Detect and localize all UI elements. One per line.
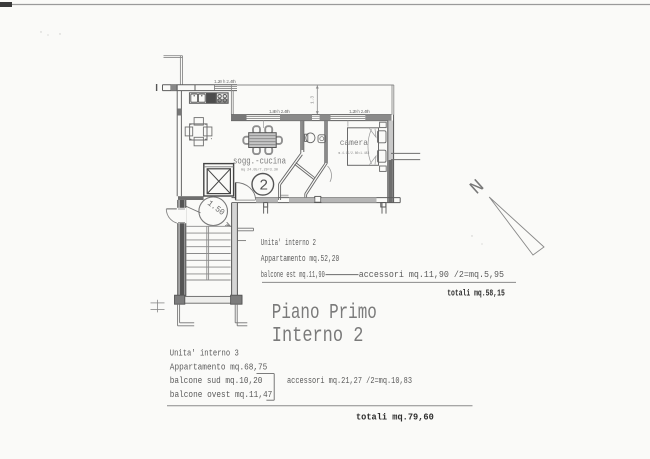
svg-text:accessori mq.21,27 /2=mq.10,83: accessori mq.21,27 /2=mq.10,83 bbox=[287, 376, 412, 386]
svg-text:2: 2 bbox=[259, 178, 268, 195]
svg-text:mq 24.05/7.29=3.30: mq 24.05/7.29=3.30 bbox=[241, 168, 279, 173]
svg-text:Unita' interno 2: Unita' interno 2 bbox=[261, 238, 316, 248]
svg-text:m.4.15/2.80=1.483: m.4.15/2.80=1.483 bbox=[338, 151, 369, 156]
svg-text:balcone est mq.11,90: balcone est mq.11,90 bbox=[261, 270, 325, 280]
svg-text:camera: camera bbox=[340, 139, 368, 148]
svg-text:accessori mq.11,90 /2=mq.5,95: accessori mq.11,90 /2=mq.5,95 bbox=[359, 270, 504, 280]
svg-text:1.20 h 2.40h: 1.20 h 2.40h bbox=[349, 109, 370, 115]
svg-text:balcone ovest mq.11,47: balcone ovest mq.11,47 bbox=[170, 390, 272, 400]
svg-text:1.80 h 2.40h: 1.80 h 2.40h bbox=[269, 109, 290, 115]
svg-text:Unita' interno 3: Unita' interno 3 bbox=[170, 349, 239, 359]
svg-text:balcone sud mq.10,20: balcone sud mq.10,20 bbox=[170, 376, 263, 386]
svg-text:totali mq.58,15: totali mq.58,15 bbox=[447, 289, 505, 299]
svg-text:1.20 h 2.40h: 1.20 h 2.40h bbox=[214, 79, 236, 85]
svg-text:totali mq.79,60: totali mq.79,60 bbox=[356, 413, 434, 423]
svg-text:sogg.-cucina: sogg.-cucina bbox=[233, 157, 286, 167]
svg-text:Appartamento mq.68,75: Appartamento mq.68,75 bbox=[170, 362, 267, 372]
svg-text:Appartamento mq.52,20: Appartamento mq.52,20 bbox=[261, 254, 339, 264]
svg-text:Piano Primo: Piano Primo bbox=[272, 301, 377, 325]
svg-text:Interno 2: Interno 2 bbox=[272, 324, 364, 348]
svg-text:1.3: 1.3 bbox=[310, 96, 316, 104]
svg-text:N: N bbox=[466, 175, 489, 199]
